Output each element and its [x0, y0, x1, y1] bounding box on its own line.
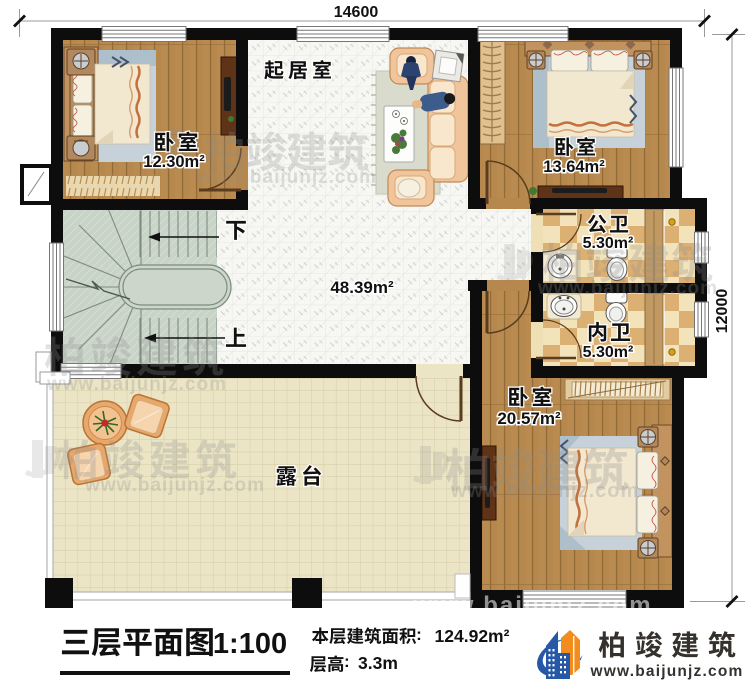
svg-text::: :	[344, 652, 350, 671]
svg-text::: :	[416, 625, 422, 644]
svg-text:1:100: 1:100	[213, 628, 287, 660]
svg-text:14600: 14600	[334, 4, 379, 21]
svg-text:3.3m: 3.3m	[358, 653, 398, 673]
svg-text:www.baijunjz.com: www.baijunjz.com	[590, 663, 744, 680]
svg-text:www.baijunjz.com: www.baijunjz.com	[537, 278, 718, 299]
svg-text:5.30m²: 5.30m²	[583, 344, 634, 361]
svg-text:12000: 12000	[714, 289, 731, 334]
svg-text:www.baijunjz.com: www.baijunjz.com	[450, 480, 640, 502]
svg-text:48.39m²: 48.39m²	[330, 278, 394, 297]
svg-text:www.baijunjz.com: www.baijunjz.com	[46, 374, 227, 395]
svg-text:www.baijunjz.com: www.baijunjz.com	[412, 592, 652, 619]
svg-text:13.64m²: 13.64m²	[543, 158, 605, 176]
svg-text:www.baijunjz.com: www.baijunjz.com	[84, 475, 265, 496]
svg-text:12.30m²: 12.30m²	[143, 153, 205, 171]
svg-text:124.92m²: 124.92m²	[435, 626, 510, 646]
svg-text:5.30m²: 5.30m²	[583, 235, 634, 252]
svg-text:www.baijunjz.com: www.baijunjz.com	[196, 167, 377, 188]
svg-text:20.57m²: 20.57m²	[497, 409, 561, 428]
